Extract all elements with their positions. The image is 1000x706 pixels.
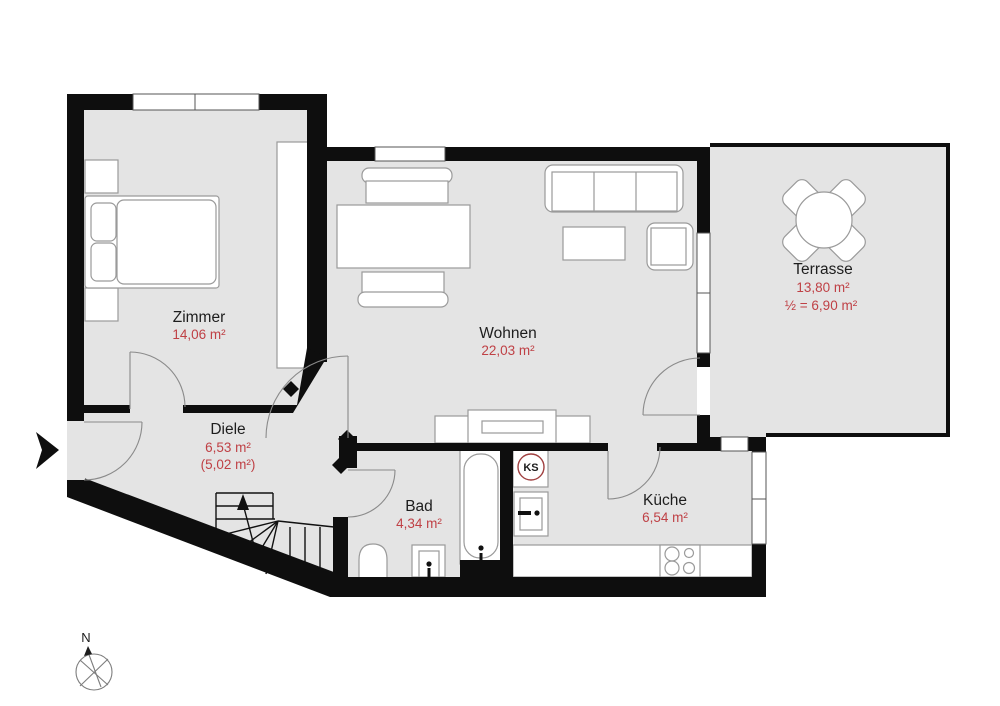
dining-chair-top: [362, 168, 452, 203]
room-area-diele: 6,53 m²: [205, 440, 251, 455]
room-label-bad: Bad: [405, 498, 433, 515]
dining-table: [337, 205, 470, 268]
sofa: [545, 165, 683, 212]
compass-icon: [76, 646, 112, 690]
wall-right-doorpost: [697, 353, 710, 367]
wall-left-upper: [67, 94, 84, 422]
wall-bad-kueche-divider: [500, 443, 513, 577]
wall-right-upper: [697, 147, 710, 233]
entrance-arrow-icon: [36, 432, 59, 469]
coffee-table: [563, 227, 625, 260]
room-area-kueche: 6,54 m²: [642, 510, 688, 525]
fridge-label: KS: [523, 462, 538, 474]
nightstand-top: [85, 160, 118, 193]
room-area-bad: 4,34 m²: [396, 516, 442, 531]
window-wohnen: [375, 147, 445, 161]
room-label-diele: Diele: [210, 421, 245, 438]
compass-north-label: N: [81, 630, 90, 645]
bed: [85, 196, 219, 288]
dining-chair-bottom: [358, 272, 448, 307]
entrance-opening: [67, 421, 85, 480]
window-zimmer: [133, 94, 259, 110]
wall-under-tub: [460, 560, 513, 577]
nightstand-bottom: [85, 288, 118, 321]
room-label-zimmer: Zimmer: [173, 309, 226, 326]
room-label-kueche: Küche: [643, 492, 687, 509]
wall-bad-kueche-top-left: [353, 443, 608, 451]
wall-zimmer-bottom-right: [183, 405, 272, 413]
wall-bad-left: [333, 517, 348, 577]
floorplan-page: Zimmer 14,06 m² Wohnen 22,03 m² Terrasse…: [0, 0, 1000, 706]
room-area-terrasse: 13,80 m²: [796, 280, 850, 295]
armchair: [647, 223, 693, 270]
window-kueche-top: [721, 437, 748, 451]
wardrobe: [277, 142, 308, 368]
room-halfarea-terrasse: ½ = 6,90 m²: [785, 298, 858, 313]
window-kueche-right: [752, 452, 766, 544]
kitchen-counter: [513, 545, 752, 577]
bathtub: [460, 448, 502, 564]
pillow: [91, 243, 116, 281]
room-label-terrasse: Terrasse: [793, 261, 852, 278]
room-area2-diele: (5,02 m²): [201, 457, 256, 472]
wall-bad-kueche-top-right: [657, 443, 697, 451]
stove: [660, 545, 700, 577]
washbasin: [359, 544, 387, 578]
toilet: [412, 545, 445, 577]
room-area-wohnen: 22,03 m²: [481, 343, 535, 358]
floorplan-drawing: Zimmer 14,06 m² Wohnen 22,03 m² Terrasse…: [0, 0, 1000, 706]
room-area-zimmer: 14,06 m²: [172, 327, 226, 342]
kitchen-sink: [514, 492, 548, 536]
wall-zimmer-bottom-left: [84, 405, 130, 413]
window-wohnen-terrace: [697, 233, 710, 353]
pillow: [91, 203, 116, 241]
room-label-wohnen: Wohnen: [479, 325, 536, 342]
terrace-table: [796, 192, 852, 248]
wall-bottom: [330, 577, 766, 597]
wall-party: [307, 94, 327, 362]
